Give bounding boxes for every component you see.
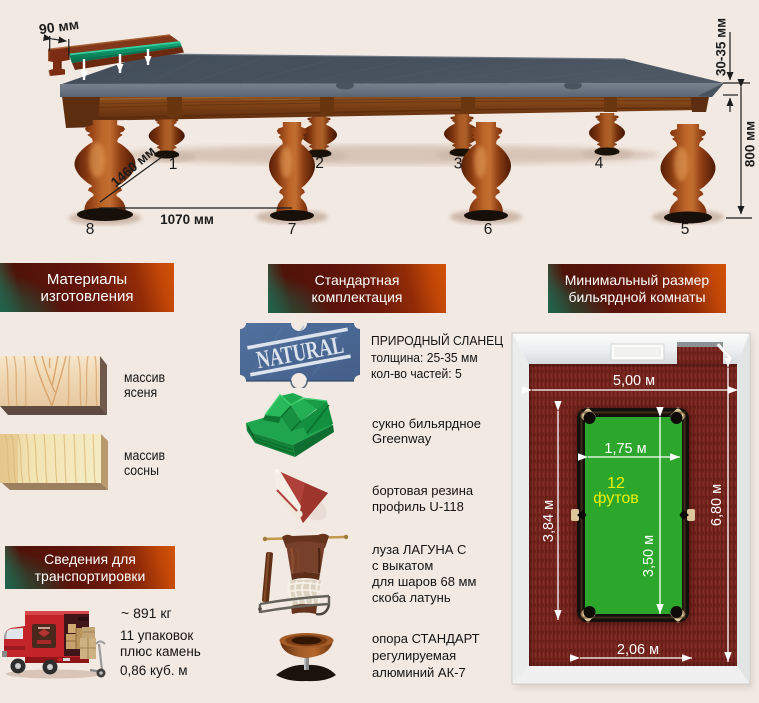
svg-text:5,00 м: 5,00 м: [613, 373, 655, 389]
svg-text:30-35 мм: 30-35 мм: [714, 18, 729, 76]
svg-text:1,75 м: 1,75 м: [604, 441, 646, 457]
svg-text:3,50 м: 3,50 м: [641, 535, 657, 577]
svg-text:1070 мм: 1070 мм: [160, 212, 214, 227]
svg-text:2: 2: [315, 155, 324, 172]
svg-text:3: 3: [454, 156, 463, 173]
svg-text:6: 6: [484, 221, 493, 238]
svg-text:800 мм: 800 мм: [743, 121, 758, 167]
svg-text:2,06 м: 2,06 м: [617, 642, 659, 658]
svg-text:7: 7: [288, 221, 297, 238]
svg-text:90 мм: 90 мм: [38, 16, 80, 37]
svg-text:8: 8: [86, 221, 95, 238]
svg-text:3,84 м: 3,84 м: [541, 500, 557, 542]
svg-text:5: 5: [681, 221, 690, 238]
svg-text:1: 1: [169, 156, 178, 173]
svg-text:6,80 м: 6,80 м: [709, 484, 725, 526]
svg-text:футов: футов: [593, 490, 639, 507]
svg-text:4: 4: [595, 155, 604, 172]
